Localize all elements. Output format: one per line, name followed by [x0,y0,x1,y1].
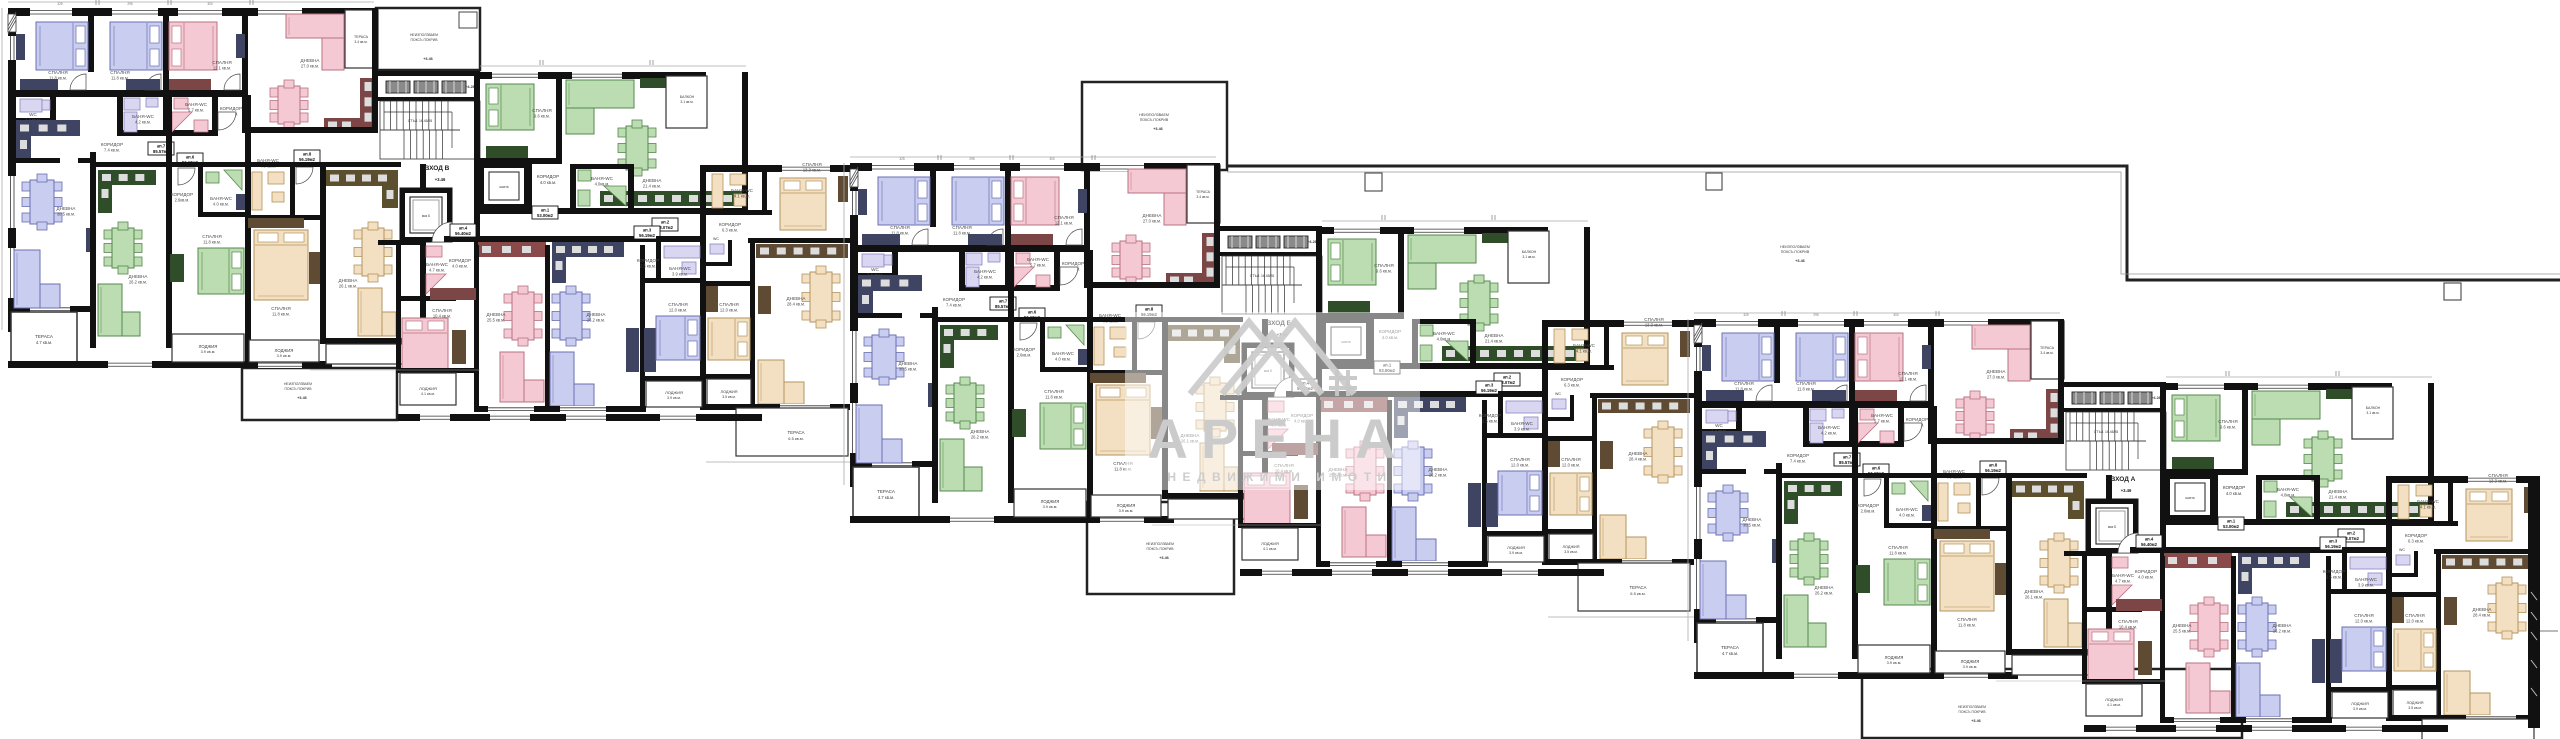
svg-text:АРЕНА: АРЕНА [1147,407,1408,470]
svg-text:НЕИЗПОЛЗВАЕМ: НЕИЗПОЛЗВАЕМ [1146,542,1174,546]
svg-text:+3.46: +3.46 [1971,719,1981,723]
svg-text:ПОКСЪ ПОКРИВ: ПОКСЪ ПОКРИВ [1959,710,1987,714]
svg-text:НЕИЗПОЛЗВАЕМ: НЕИЗПОЛЗВАЕМ [1780,245,1810,249]
svg-text:НЕИЗПОЛЗВАЕМ: НЕИЗПОЛЗВАЕМ [1139,113,1169,117]
svg-text:+3.46: +3.46 [1795,259,1805,263]
svg-text:ПОКСЪ ПОКРИВ: ПОКСЪ ПОКРИВ [1140,118,1169,122]
svg-text:НЕДВИЖИМИ ИМОТИ: НЕДВИЖИМИ ИМОТИ [1167,470,1392,484]
svg-text:НЕИЗПОЛЗВАЕМ: НЕИЗПОЛЗВАЕМ [1958,705,1986,709]
svg-text:НЕИЗПОЛЗВАЕМ: НЕИЗПОЛЗВАЕМ [284,382,312,386]
svg-text:+3.46: +3.46 [297,396,307,400]
svg-text:ПОКСЪ ПОКРИВ: ПОКСЪ ПОКРИВ [1147,547,1175,551]
svg-text:НЕИЗПОЛЗВАЕМ: НЕИЗПОЛЗВАЕМ [410,33,438,37]
svg-text:+3.46: +3.46 [1153,127,1163,131]
svg-text:ВХОД А: ВХОД А [2111,476,2136,483]
svg-text:+3.46: +3.46 [423,57,433,61]
svg-text:ВХОД В: ВХОД В [425,165,450,172]
svg-text:ПОКСЪ ПОКРИВ: ПОКСЪ ПОКРИВ [285,387,313,391]
svg-text:+3.46: +3.46 [1159,556,1169,560]
svg-text:ПОКСЪ ПОКРИВ: ПОКСЪ ПОКРИВ [411,38,439,42]
svg-text:ПОКСЪ ПОКРИВ: ПОКСЪ ПОКРИВ [1781,250,1810,254]
